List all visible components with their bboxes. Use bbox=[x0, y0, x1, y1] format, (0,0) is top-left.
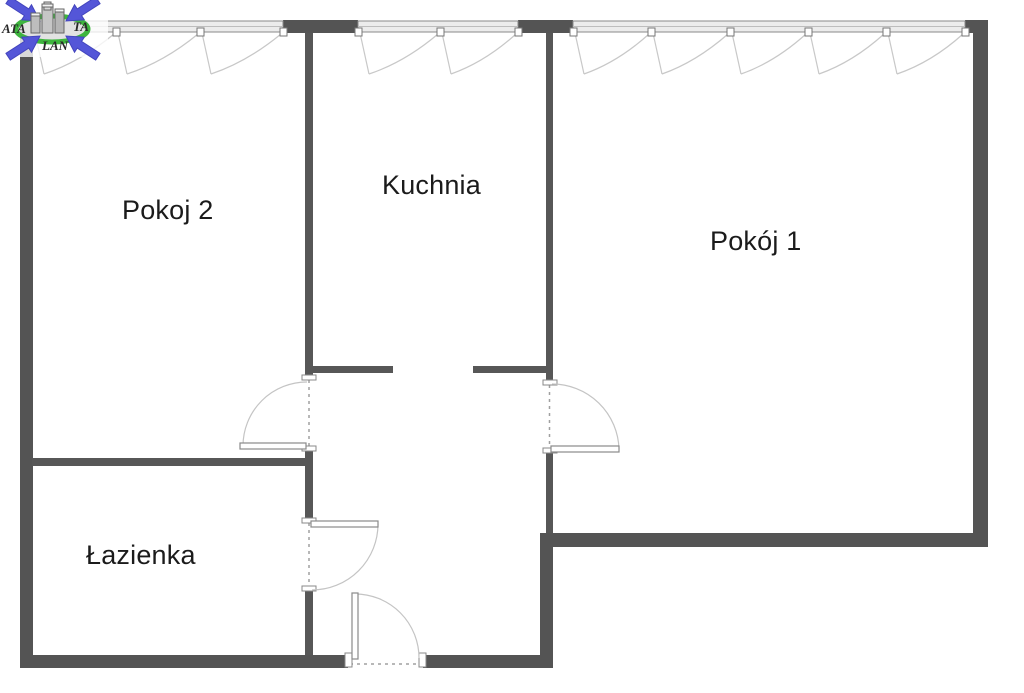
wall-exterior-corridor-right bbox=[540, 533, 553, 668]
room-label-pokoj-1: Pokój 1 bbox=[710, 227, 801, 255]
wall-lazienka-top bbox=[32, 458, 307, 466]
entrance-door-swing-arc bbox=[355, 594, 419, 658]
window-sash-fans-kuchnia bbox=[360, 33, 516, 74]
wall-pokoj-1-bottom bbox=[540, 533, 988, 547]
wall-kuchnia-bottom-right bbox=[473, 366, 549, 373]
entrance-door-leaf bbox=[352, 593, 358, 659]
wall-exterior-top-segment-1 bbox=[283, 20, 358, 33]
logo-text-right: TA bbox=[73, 19, 89, 34]
door-lazienka bbox=[302, 518, 378, 591]
watermark-logo: ATA TA LAN bbox=[0, 0, 108, 64]
room-label-lazienka: Łazienka bbox=[86, 541, 196, 569]
logo-text-bottom: LAN bbox=[41, 38, 69, 53]
door-lazienka-swing-arc bbox=[312, 524, 378, 590]
wall-corridor-pokoj1 bbox=[546, 451, 553, 533]
door-pokoj-1-swing-arc bbox=[552, 384, 619, 449]
door-pokoj-2-leaf bbox=[240, 443, 306, 449]
floor-plan-drawing: ATA TA LAN bbox=[0, 0, 1024, 693]
door-lazienka-leaf bbox=[311, 521, 378, 527]
door-pokoj-1-leaf bbox=[551, 446, 619, 452]
logo-text-left: ATA bbox=[1, 21, 26, 36]
room-label-pokoj-2: Pokoj 2 bbox=[122, 196, 213, 224]
wall-exterior-right bbox=[973, 20, 988, 547]
wall-exterior-top-segment-2 bbox=[518, 20, 573, 33]
wall-exterior-left bbox=[20, 20, 33, 668]
window-sash-fans-pokoj-1 bbox=[575, 33, 963, 74]
wall-kuchnia-bottom-left bbox=[310, 366, 393, 373]
door-pokoj-2 bbox=[240, 375, 316, 451]
wall-pokoj2-kuchnia bbox=[305, 33, 313, 378]
wall-kuchnia-pokoj1 bbox=[546, 33, 553, 383]
door-pokoj-1 bbox=[543, 380, 619, 453]
entrance-door bbox=[345, 593, 426, 667]
wall-exterior-bottom-left bbox=[20, 655, 348, 668]
wall-corridor-left-low bbox=[305, 590, 313, 655]
windows bbox=[30, 21, 969, 74]
room-label-kuchnia: Kuchnia bbox=[382, 171, 481, 199]
floor-plan: ATA TA LAN Pokoj 2 Kuchnia Pokój 1 Łazie… bbox=[0, 0, 1024, 693]
door-pokoj-2-swing-arc bbox=[243, 382, 307, 446]
wall-exterior-bottom-right bbox=[423, 655, 553, 668]
exterior-walls bbox=[20, 20, 988, 668]
